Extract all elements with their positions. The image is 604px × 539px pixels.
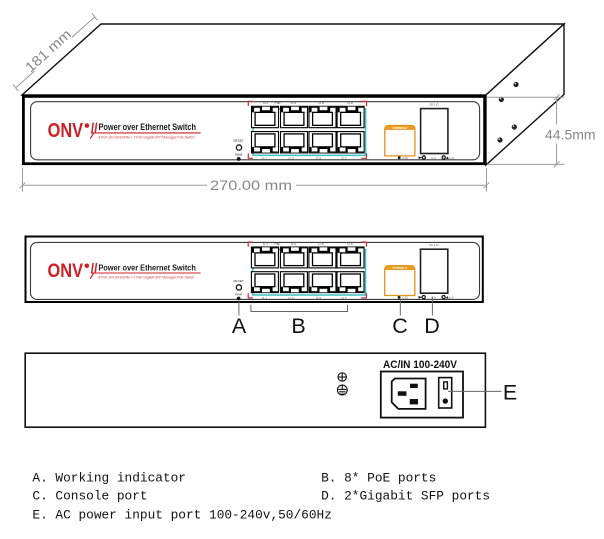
svg-text:D. 2*Gigabit SFP ports: D. 2*Gigabit SFP ports xyxy=(321,489,490,504)
svg-text:C: C xyxy=(392,314,408,338)
svg-text:C. Console port: C. Console port xyxy=(32,489,147,504)
svg-text:AC/IN 100-240V: AC/IN 100-240V xyxy=(383,359,458,371)
svg-text:D: D xyxy=(424,314,440,338)
svg-text:270.00 mm: 270.00 mm xyxy=(210,177,292,193)
svg-text:B. 8* PoE ports: B. 8* PoE ports xyxy=(321,470,436,485)
svg-text:E: E xyxy=(503,381,517,405)
svg-text:B: B xyxy=(291,314,305,338)
svg-text:E. AC power input port 100-240: E. AC power input port 100-240v,50/60Hz xyxy=(32,508,332,523)
svg-text:A: A xyxy=(232,314,247,338)
svg-text:44.5mm: 44.5mm xyxy=(545,127,596,143)
svg-text:A. Working indicator: A. Working indicator xyxy=(32,470,186,485)
